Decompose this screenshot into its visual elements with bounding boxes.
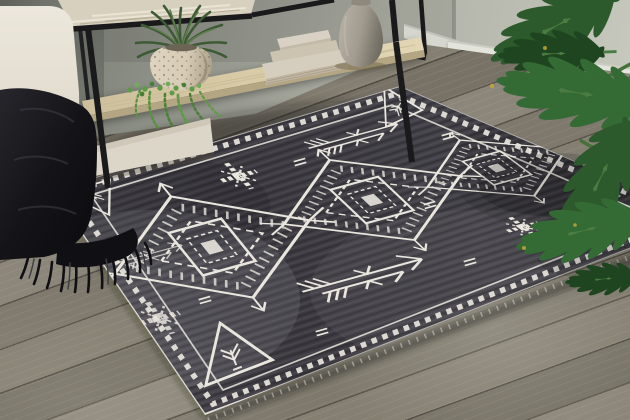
product-photo-scene	[0, 0, 630, 420]
philodendron-plant	[0, 0, 630, 420]
